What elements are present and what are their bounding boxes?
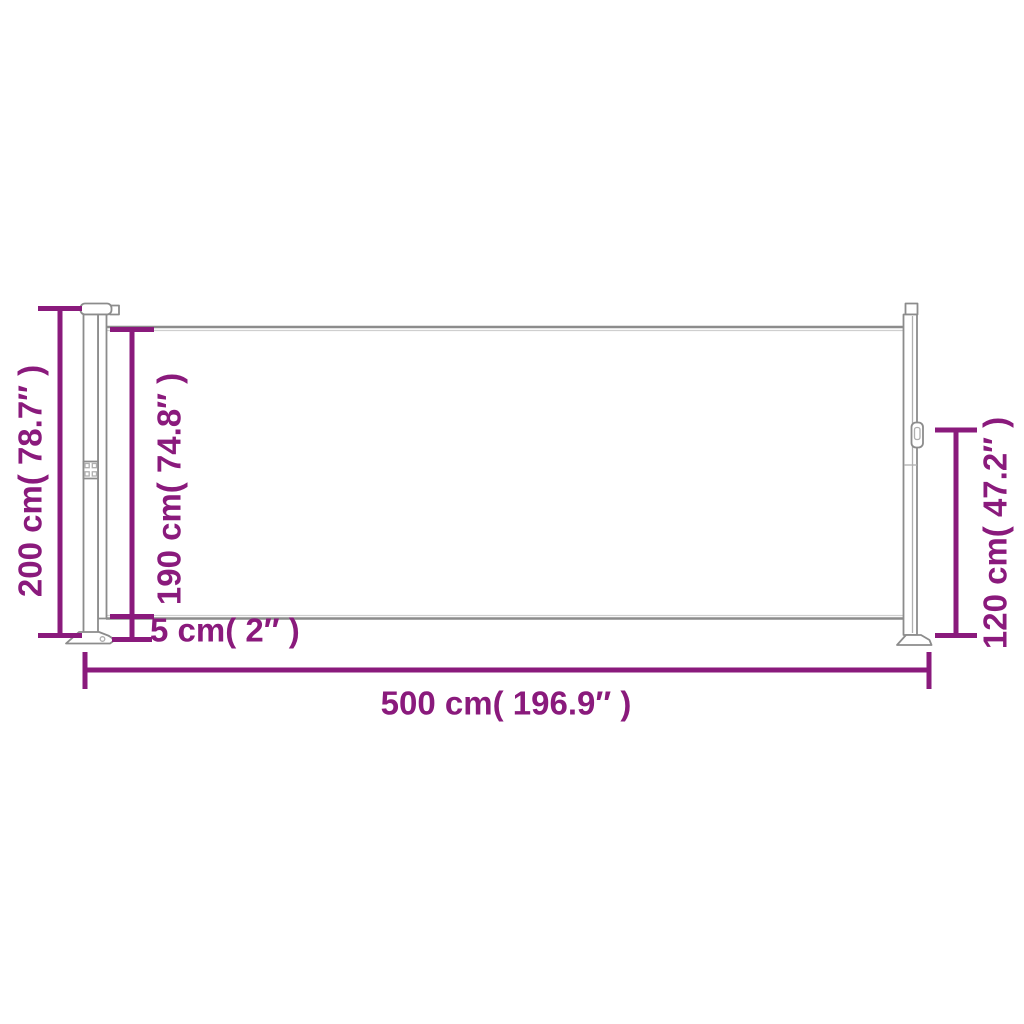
post-cap — [906, 304, 918, 315]
dimension-label-fabric-height: 190 cm( 74.8″ ) — [153, 373, 186, 605]
dimension-label-total-height: 200 cm( 78.7″ ) — [14, 365, 47, 597]
product-dimension-diagram: 200 cm( 78.7″ ) 190 cm( 74.8″ ) 5 cm( 2″… — [0, 0, 1024, 1024]
post-foot — [897, 635, 932, 645]
post-handle — [912, 423, 924, 448]
dimension-label-ground-clearance: 5 cm( 2″ ) — [150, 614, 300, 647]
dimension-label-total-width: 500 cm( 196.9″ ) — [381, 687, 632, 720]
post-body — [904, 315, 918, 636]
dimension-ground-clearance — [112, 617, 152, 642]
cassette-inner-tube — [98, 315, 107, 619]
dimension-rear-post-height — [935, 428, 977, 638]
cassette-cap — [81, 304, 112, 315]
dimension-total-width — [85, 652, 929, 689]
dimension-label-rear-post-height: 120 cm( 47.2″ ) — [979, 417, 1012, 649]
cassette-joint-bracket — [84, 462, 99, 479]
fabric-screen — [106, 327, 906, 619]
